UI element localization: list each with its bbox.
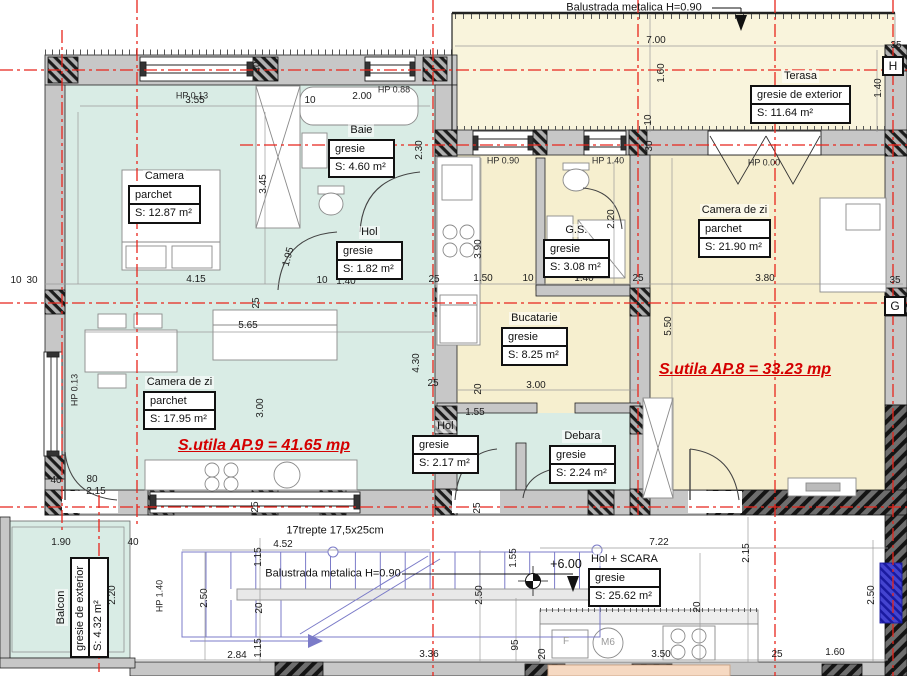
dimension-label: 1.55	[509, 548, 519, 567]
room-finish: gresie	[503, 329, 566, 348]
hp-label: HP 0.13	[71, 374, 80, 406]
room-label: BucatariegresieS: 8.25 m²	[501, 312, 568, 366]
hp-label: HP 1.40	[156, 580, 165, 612]
dimension-label: 25	[427, 379, 438, 389]
room-label: Hol + SCARAgresieS: 25.62 m²	[588, 553, 661, 607]
balustrade-note-top: Balustrada metalica H=0.90	[566, 3, 701, 14]
room-area: S: 25.62 m²	[590, 588, 659, 605]
dimension-label: 1.55	[465, 408, 484, 418]
dimension-label: 2.00	[352, 92, 371, 102]
hp-label: HP 0.13	[176, 92, 208, 101]
dimension-label: 95	[511, 639, 521, 650]
dimension-label: 1.60	[825, 648, 844, 658]
dimension-label: 3.36	[419, 650, 438, 660]
room-label: Balcongresie de exteriorS: 4.32 m²	[55, 557, 109, 658]
room-area: S: 17.95 m²	[145, 411, 214, 428]
room-finish: gresie	[545, 241, 608, 260]
dimension-label: 3.50	[651, 650, 670, 660]
ap9-total-area: S.utila AP.9 = 41.65 mp	[178, 437, 350, 455]
room-finish: gresie de exterior	[752, 87, 849, 106]
dimension-label: 4.30	[412, 353, 422, 372]
dimension-label: 2.15	[742, 543, 752, 562]
room-area: S: 1.82 m²	[338, 261, 401, 278]
dimension-label: 1.40	[874, 78, 884, 97]
dimension-label: 1.95	[282, 246, 297, 267]
room-finish: gresie	[590, 570, 659, 589]
room-info-box: gresieS: 2.17 m²	[412, 435, 479, 474]
dimension-label: 40	[253, 61, 263, 72]
dimension-label: 3.45	[259, 174, 269, 193]
dimension-label: 30	[26, 276, 37, 286]
dimension-label: 10	[316, 276, 327, 286]
grid-letter: G	[884, 296, 906, 316]
room-info-box: gresieS: 25.62 m²	[588, 568, 661, 607]
dimension-label: 20	[538, 648, 548, 659]
appliance-label: M6	[601, 638, 615, 648]
dimension-label: 5.65	[238, 321, 257, 331]
room-finish: parchet	[700, 221, 769, 240]
room-info-box: gresieS: 1.82 m²	[336, 241, 403, 280]
dimension-label: 25	[251, 501, 261, 512]
dimension-label: 40	[50, 476, 61, 486]
dimension-label: 10	[522, 274, 533, 284]
dimension-label: 25	[771, 650, 782, 660]
room-label: DebaragresieS: 2.24 m²	[549, 430, 616, 484]
room-name: Bucatarie	[509, 312, 559, 325]
room-info-box: gresie de exteriorS: 11.64 m²	[750, 85, 851, 124]
room-finish: parchet	[145, 393, 214, 412]
dimension-label: 25	[428, 275, 439, 285]
dimension-label: 3.00	[256, 398, 266, 417]
room-label: G.S.gresieS: 3.08 m²	[543, 224, 610, 278]
dimension-label: 2.50	[475, 585, 485, 604]
grid-letter: H	[882, 56, 904, 76]
dimension-label: 40	[127, 538, 138, 548]
dimension-label: 2.50	[200, 588, 210, 607]
dimension-label: 2.30	[415, 140, 425, 159]
room-name: Camera de zi	[700, 204, 769, 217]
appliance-label: F	[563, 637, 569, 647]
room-info-box: gresieS: 4.60 m²	[328, 139, 395, 178]
room-info-box: gresieS: 2.24 m²	[549, 445, 616, 484]
ap8-total-area: S.utila AP.8 = 33.23 mp	[659, 361, 831, 379]
room-name: Hol	[359, 226, 380, 239]
dimension-label: 20	[693, 601, 703, 612]
room-area: S: 12.87 m²	[130, 205, 199, 222]
room-finish: gresie de exterior	[72, 559, 91, 656]
dimension-label: 4.15	[186, 275, 205, 285]
stairs-note: 17trepte 17,5x25cm	[286, 526, 383, 537]
labels-layer: Balustrada metalica H=0.90 17trepte 17,5…	[0, 0, 907, 676]
room-area: S: 4.32 m²	[90, 559, 107, 656]
hp-label: HP 1.40	[592, 157, 624, 166]
dimension-label: 3.00	[526, 381, 545, 391]
dimension-label: 2.84	[227, 651, 246, 661]
room-label: BaiegresieS: 4.60 m²	[328, 124, 395, 178]
room-label: Terasagresie de exteriorS: 11.64 m²	[750, 70, 851, 124]
dimension-label: 25	[632, 274, 643, 284]
dimension-label: 25	[473, 502, 483, 513]
room-info-box: gresieS: 8.25 m²	[501, 327, 568, 366]
room-finish: gresie	[330, 141, 393, 160]
dimension-label: 3.80	[755, 274, 774, 284]
room-label: CameraparchetS: 12.87 m²	[128, 170, 201, 224]
room-label: Camera de ziparchetS: 21.90 m²	[698, 204, 771, 258]
dimension-label: 4.52	[273, 540, 292, 550]
room-name: G.S.	[563, 224, 589, 237]
room-name: Camera de zi	[145, 376, 214, 389]
level-mark-label: +6.00	[550, 558, 582, 571]
dimension-label: 10	[644, 114, 654, 125]
room-info-box: gresie de exteriorS: 4.32 m²	[70, 557, 109, 658]
room-name: Balcon	[55, 589, 68, 627]
room-name: Camera	[143, 170, 186, 183]
room-area: S: 11.64 m²	[752, 105, 849, 122]
room-label: HolgresieS: 2.17 m²	[412, 420, 479, 474]
dimension-label: 7.22	[649, 538, 668, 548]
room-label: Camera de ziparchetS: 17.95 m²	[143, 376, 216, 430]
floor-plan: Balustrada metalica H=0.90 17trepte 17,5…	[0, 0, 907, 676]
dimension-label: 25	[252, 297, 262, 308]
room-area: S: 8.25 m²	[503, 347, 566, 364]
hp-label: HP 0.00	[748, 159, 780, 168]
dimension-label: 7.00	[646, 36, 665, 46]
dimension-label: 1.15	[254, 547, 264, 566]
dimension-label: 5.50	[664, 316, 674, 335]
room-name: Terasa	[782, 70, 819, 83]
room-finish: parchet	[130, 187, 199, 206]
room-info-box: parchetS: 12.87 m²	[128, 185, 201, 224]
hp-label: HP 0.88	[378, 86, 410, 95]
dimension-label: 20	[474, 383, 484, 394]
room-area: S: 21.90 m²	[700, 239, 769, 256]
dimension-label: 2.50	[867, 585, 877, 604]
dimension-label: 1.90	[51, 538, 70, 548]
room-label: HolgresieS: 1.82 m²	[336, 226, 403, 280]
room-name: Baie	[348, 124, 374, 137]
dimension-label: 10	[10, 276, 21, 286]
dimension-label: 20	[255, 602, 265, 613]
dimension-label: 10	[304, 96, 315, 106]
dimension-label: 1.15	[254, 638, 264, 657]
room-info-box: gresieS: 3.08 m²	[543, 239, 610, 278]
room-area: S: 2.17 m²	[414, 455, 477, 472]
dimension-label: 30	[645, 140, 655, 151]
dimension-label: 1.60	[657, 63, 667, 82]
dimension-label: 80	[86, 475, 97, 485]
room-area: S: 3.08 m²	[545, 259, 608, 276]
room-finish: gresie	[551, 447, 614, 466]
room-name: Debara	[562, 430, 602, 443]
dimension-label: 2.20	[108, 585, 118, 604]
dimension-label: 3.90	[474, 239, 484, 258]
room-finish: gresie	[414, 437, 477, 456]
room-area: S: 2.24 m²	[551, 465, 614, 482]
room-area: S: 4.60 m²	[330, 159, 393, 176]
room-name: Hol	[435, 420, 456, 433]
room-finish: gresie	[338, 243, 401, 262]
dimension-label: 35	[890, 41, 901, 51]
room-name: Hol + SCARA	[589, 553, 660, 566]
dimension-label: 35	[889, 276, 900, 286]
room-info-box: parchetS: 21.90 m²	[698, 219, 771, 258]
dimension-label: 2.15	[86, 487, 105, 497]
dimension-label: 1.50	[473, 274, 492, 284]
balustrade-note-stairs: Balustrada metalica H=0.90	[265, 569, 400, 580]
room-info-box: parchetS: 17.95 m²	[143, 391, 216, 430]
hp-label: HP 0.90	[487, 157, 519, 166]
